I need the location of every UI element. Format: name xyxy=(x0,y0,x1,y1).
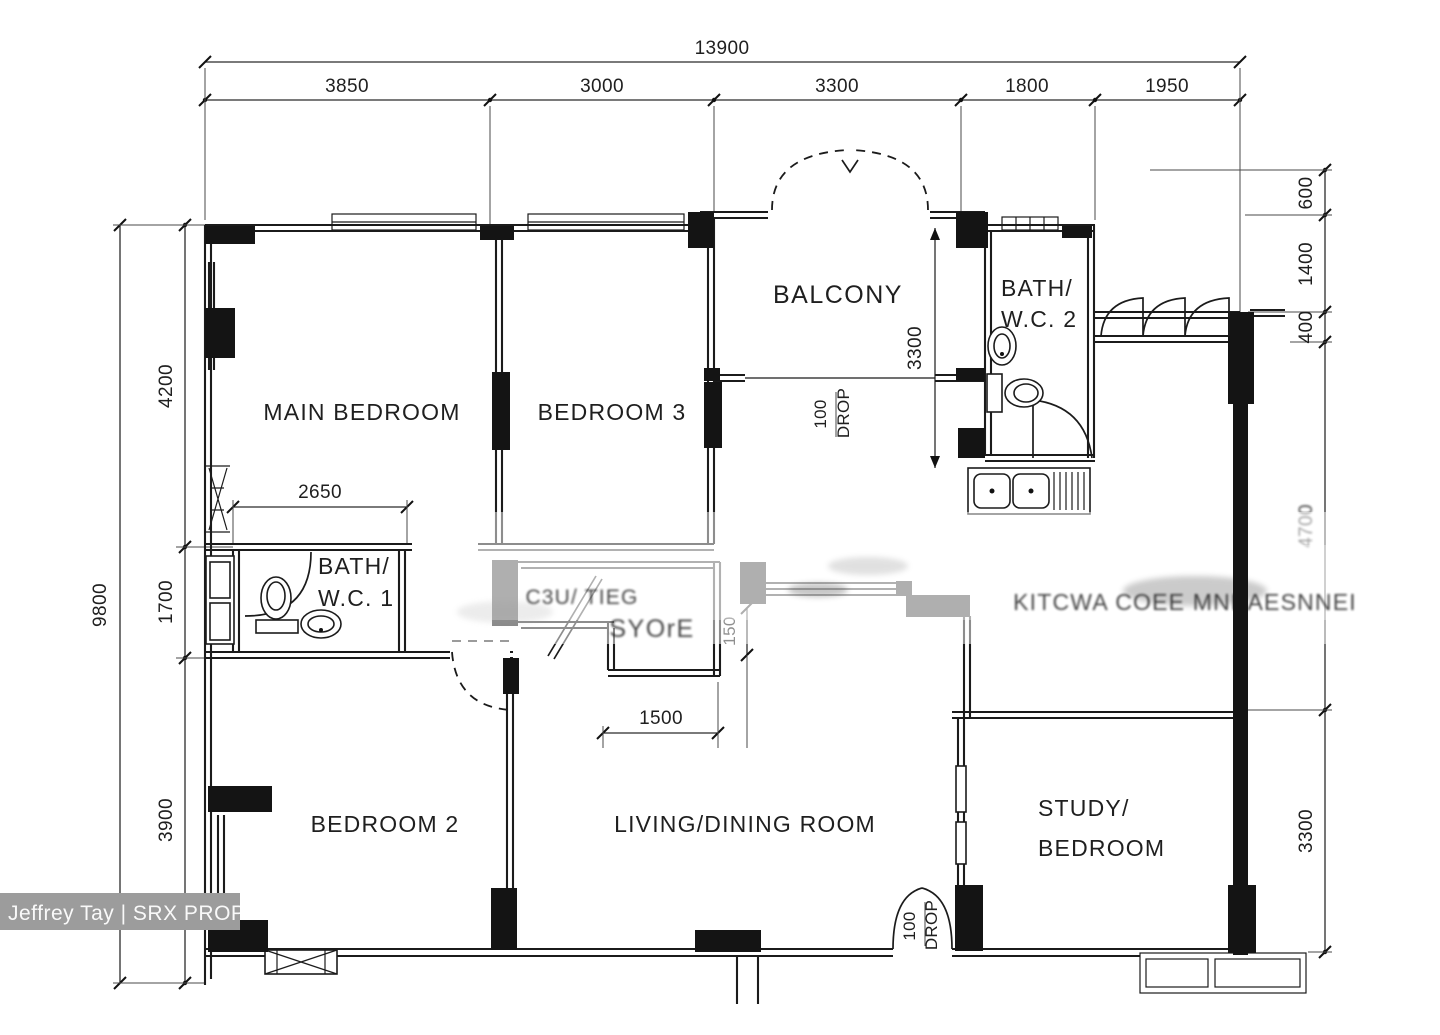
dim-top-1: 3850 xyxy=(325,76,369,97)
bedroom2-door-swing xyxy=(452,641,510,710)
room-label-bedroom3: BEDROOM 3 xyxy=(538,399,687,425)
room-label-bedroom2: BEDROOM 2 xyxy=(311,811,460,837)
balcony-door-arrow xyxy=(842,160,858,172)
bath1-vanity xyxy=(206,556,234,644)
room-label-bath2-line2: W.C. 2 xyxy=(1001,306,1077,332)
floorplan-svg: 13900 3850 3000 3300 1800 1950 9800 4200… xyxy=(0,0,1440,1035)
room-label-living-dining: LIVING/DINING ROOM xyxy=(614,811,876,837)
kitchen-sink xyxy=(968,468,1090,514)
dim-store-width: 1500 xyxy=(639,708,683,729)
window-study-slit-2 xyxy=(956,822,966,864)
dim-left-2: 1700 xyxy=(156,580,177,624)
riser-valve xyxy=(206,466,230,532)
bath1-toilet xyxy=(256,577,298,633)
dim-left-1: 4200 xyxy=(156,364,177,408)
dim-entry-drop-100: 100 xyxy=(900,911,919,940)
watermark-credit: Jeffrey Tay | SRX PROPERTY xyxy=(8,902,303,925)
dim-balcony-drop-label: DROP xyxy=(834,388,853,438)
bath2-toilet xyxy=(987,374,1043,412)
window-study-bay xyxy=(1140,953,1306,993)
dim-balcony-depth: 3300 xyxy=(905,326,926,370)
bath2-basin xyxy=(988,327,1016,365)
window-bath2 xyxy=(1002,217,1058,230)
window-bedroom2-x xyxy=(265,950,337,974)
haze-band xyxy=(415,512,1440,644)
dim-balcony-drop-100: 100 xyxy=(811,399,830,428)
dim-left-total: 9800 xyxy=(90,583,111,627)
dim-top-4: 1800 xyxy=(1005,76,1049,97)
dim-bath1-width: 2650 xyxy=(298,482,342,503)
floorplan-page: 13900 3850 3000 3300 1800 1950 9800 4200… xyxy=(0,0,1440,1035)
room-label-kitchen: KITCWA COEE MNKAESNNEI xyxy=(1013,589,1357,615)
room-label-study-line2: BEDROOM xyxy=(1038,835,1165,861)
room-label-study-line1: STUDY/ xyxy=(1038,795,1130,821)
balcony-folding-door-swing xyxy=(772,150,928,210)
dim-top-3: 3300 xyxy=(815,76,859,97)
right-service-wall xyxy=(1233,318,1248,955)
room-label-store-line2: SYOrE xyxy=(609,615,694,643)
dim-right-1: 600 xyxy=(1296,177,1317,210)
dim-right-5: 3300 xyxy=(1296,809,1317,853)
room-label-balcony: BALCONY xyxy=(773,281,903,309)
room-label-bath1-line1: BATH/ xyxy=(318,553,390,579)
dim-top-5: 1950 xyxy=(1145,76,1189,97)
dim-top-2: 3000 xyxy=(580,76,624,97)
watermark-band: Jeffrey Tay | SRX PROPERTY xyxy=(0,893,303,930)
room-label-bath1-line2: W.C. 1 xyxy=(318,585,394,611)
room-label-store-line1: C3U/ TIEG xyxy=(525,586,638,609)
bath1-basin xyxy=(301,610,341,638)
bath2-door-swing xyxy=(1033,400,1092,458)
window-study-slit-1 xyxy=(956,766,966,812)
window-main-bedroom xyxy=(332,214,476,230)
dim-top-total: 13900 xyxy=(695,38,750,59)
dim-right-2: 1400 xyxy=(1296,242,1317,286)
room-label-main-bedroom: MAIN BEDROOM xyxy=(263,399,460,425)
window-bedroom3 xyxy=(528,214,684,230)
room-label-bath2-line1: BATH/ xyxy=(1001,275,1073,301)
dim-left-3: 3900 xyxy=(156,798,177,842)
dim-entry-drop-label: DROP xyxy=(922,900,941,950)
dim-right-3: 400 xyxy=(1296,311,1317,344)
